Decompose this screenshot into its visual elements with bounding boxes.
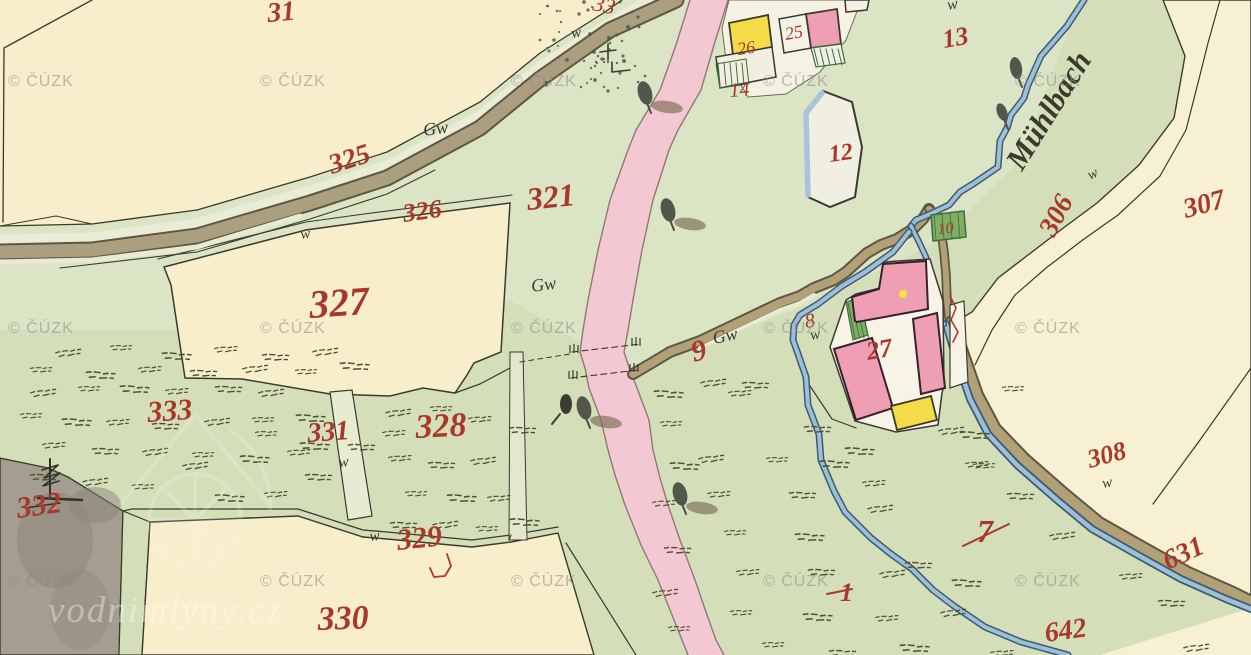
- svg-text:© ČÚZK: © ČÚZK: [763, 318, 829, 337]
- svg-text:330: 330: [316, 599, 369, 638]
- svg-text:© ČÚZK: © ČÚZK: [1015, 71, 1081, 90]
- svg-text:10: 10: [937, 220, 954, 238]
- svg-text:© ČÚZK: © ČÚZK: [511, 71, 577, 90]
- svg-text:329: 329: [394, 519, 443, 557]
- svg-text:Gw: Gw: [530, 273, 558, 296]
- svg-text:1: 1: [840, 578, 853, 607]
- svg-text:12: 12: [827, 139, 854, 168]
- svg-text:© ČÚZK: © ČÚZK: [8, 571, 74, 590]
- svg-text:321: 321: [524, 176, 576, 217]
- svg-text:Gw: Gw: [422, 117, 450, 140]
- svg-text:326: 326: [400, 194, 444, 228]
- svg-text:642: 642: [1043, 612, 1089, 649]
- svg-text:vodnimlyny.cz: vodnimlyny.cz: [48, 590, 283, 631]
- svg-text:25: 25: [783, 21, 804, 44]
- svg-text:© ČÚZK: © ČÚZK: [763, 571, 829, 590]
- svg-text:© ČÚZK: © ČÚZK: [260, 71, 326, 90]
- svg-text:13: 13: [940, 21, 971, 54]
- svg-text:© ČÚZK: © ČÚZK: [1015, 571, 1081, 590]
- svg-text:© ČÚZK: © ČÚZK: [1015, 318, 1081, 337]
- svg-text:332: 332: [13, 486, 63, 525]
- svg-text:© ČÚZK: © ČÚZK: [260, 318, 326, 337]
- svg-text:w: w: [338, 454, 349, 471]
- svg-text:328: 328: [413, 406, 467, 446]
- svg-text:31: 31: [265, 0, 297, 29]
- svg-text:331: 331: [305, 415, 350, 449]
- svg-text:© ČÚZK: © ČÚZK: [8, 318, 74, 337]
- svg-text:© ČÚZK: © ČÚZK: [8, 71, 74, 90]
- svg-text:w: w: [369, 528, 380, 545]
- svg-text:26: 26: [736, 37, 757, 59]
- svg-text:© ČÚZK: © ČÚZK: [511, 318, 577, 337]
- svg-text:14: 14: [729, 78, 751, 102]
- svg-text:© ČÚZK: © ČÚZK: [511, 571, 577, 590]
- svg-text:© ČÚZK: © ČÚZK: [763, 71, 829, 90]
- svg-text:© ČÚZK: © ČÚZK: [260, 571, 326, 590]
